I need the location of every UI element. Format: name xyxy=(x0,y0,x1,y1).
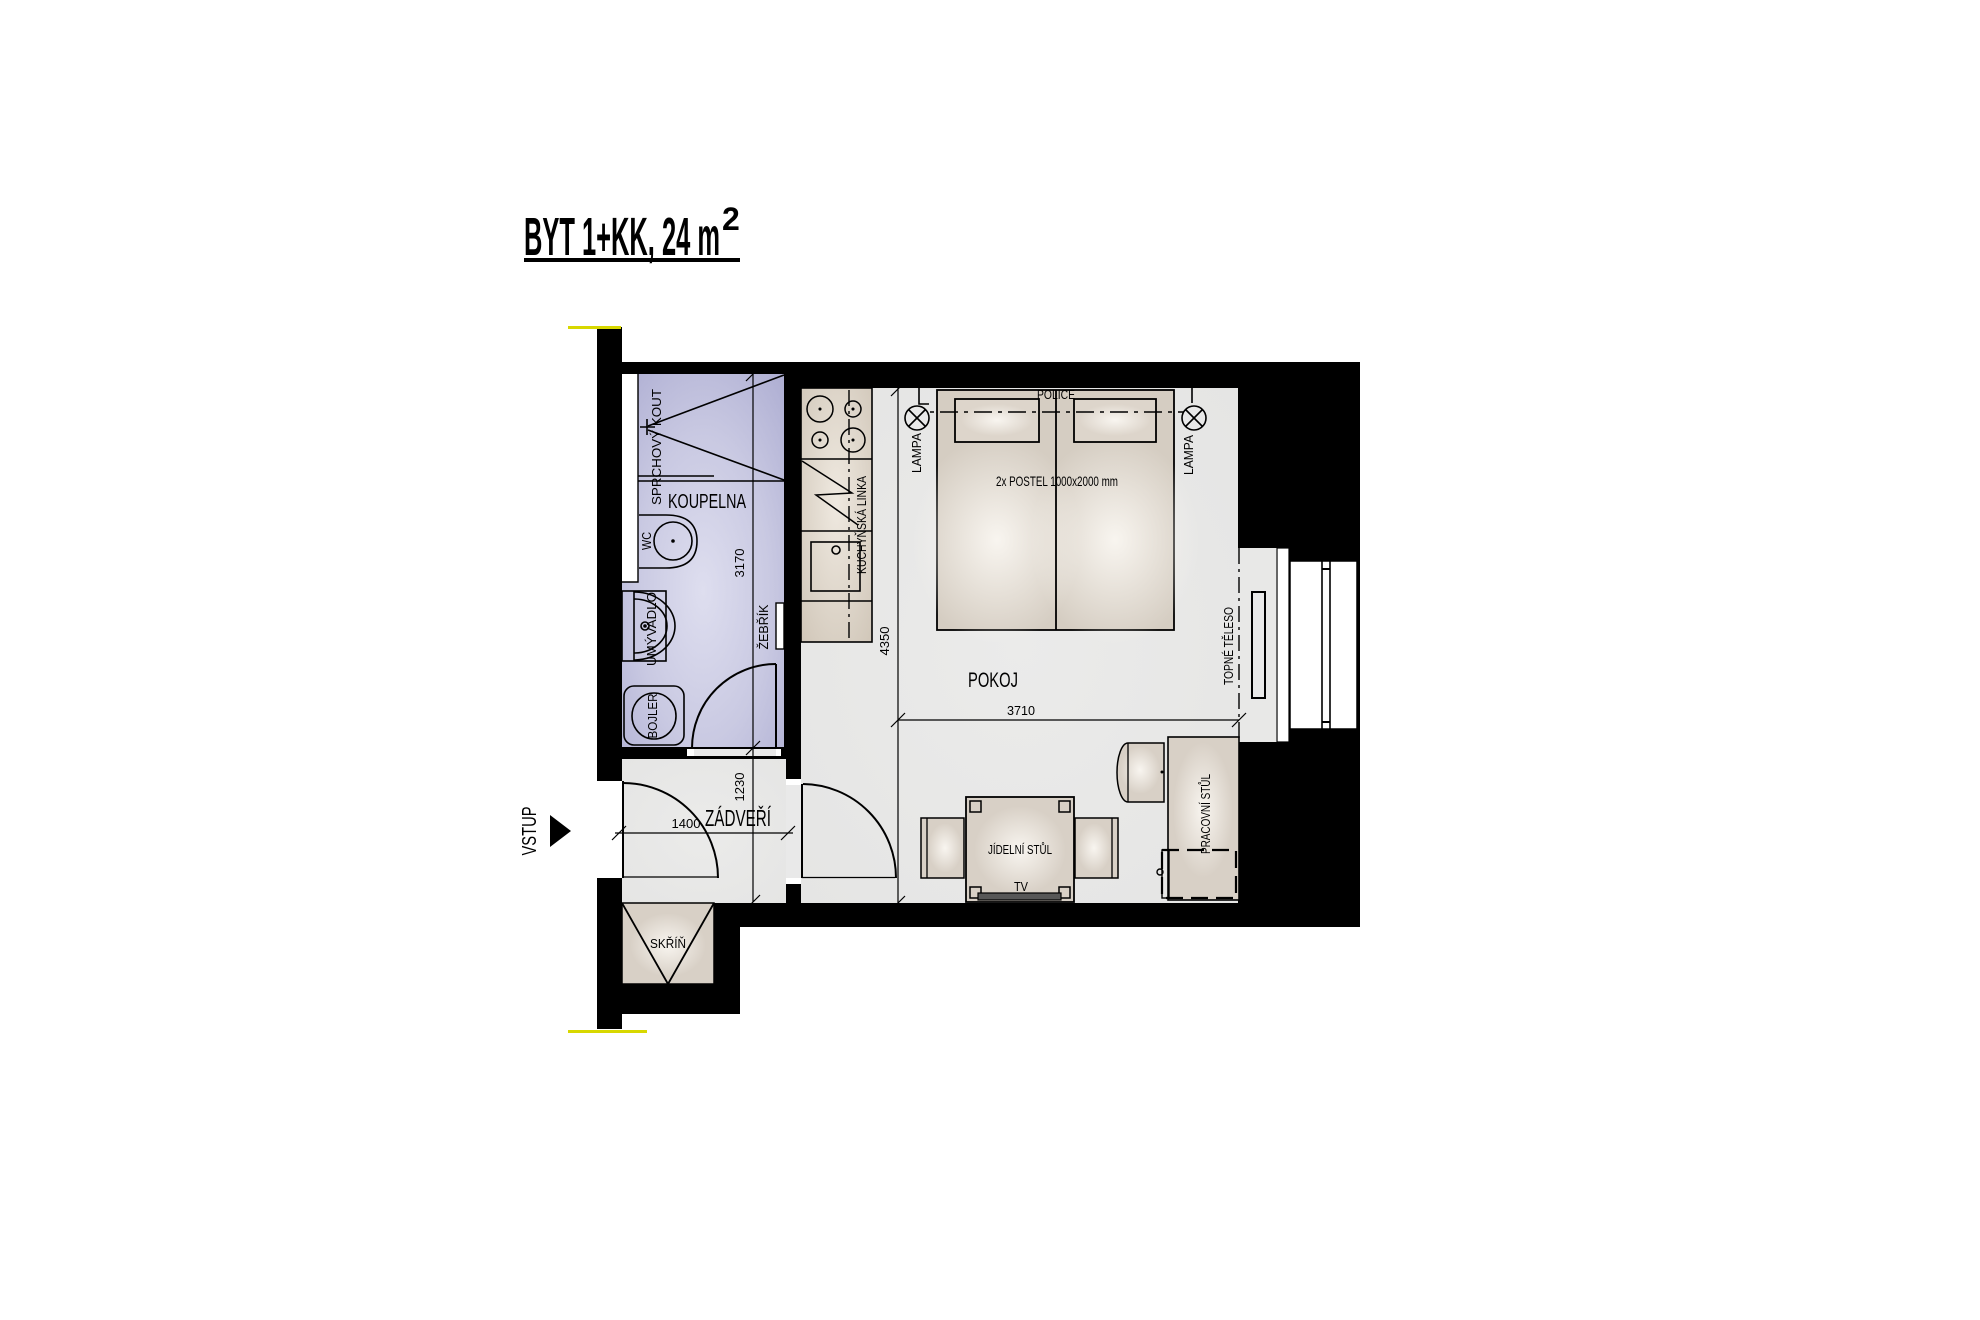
svg-text:UMÝVADLO: UMÝVADLO xyxy=(644,592,659,666)
svg-text:3170: 3170 xyxy=(732,549,747,578)
svg-text:PRACOVNÍ STŮL: PRACOVNÍ STŮL xyxy=(1198,774,1213,854)
svg-text:KUCHYŇSKÁ LINKA: KUCHYŇSKÁ LINKA xyxy=(854,476,869,574)
svg-text:TOPNÉ TĚLESO: TOPNÉ TĚLESO xyxy=(1221,607,1236,685)
svg-text:1230: 1230 xyxy=(732,773,747,802)
svg-text:WC: WC xyxy=(639,532,654,550)
svg-text:SPRCHOVÝ KOUT: SPRCHOVÝ KOUT xyxy=(649,389,664,505)
svg-text:BOJLER: BOJLER xyxy=(645,694,660,739)
svg-text:LAMPA: LAMPA xyxy=(1181,435,1196,475)
svg-text:POLICE: POLICE xyxy=(1037,387,1075,402)
svg-text:POKOJ: POKOJ xyxy=(968,669,1018,692)
svg-text:4350: 4350 xyxy=(877,627,892,656)
svg-text:1400: 1400 xyxy=(672,816,701,831)
svg-text:KOUPELNA: KOUPELNA xyxy=(668,491,746,513)
svg-text:LAMPA: LAMPA xyxy=(909,433,924,473)
svg-text:2: 2 xyxy=(722,201,740,237)
svg-text:JÍDELNÍ STŮL: JÍDELNÍ STŮL xyxy=(988,842,1052,857)
svg-text:TV: TV xyxy=(1014,879,1028,894)
svg-text:ŽEBŘÍK: ŽEBŘÍK xyxy=(756,604,771,649)
svg-text:2x POSTEL 1000x2000 mm: 2x POSTEL 1000x2000 mm xyxy=(996,473,1118,489)
svg-text:VSTUP: VSTUP xyxy=(519,807,541,856)
svg-text:ZÁDVEŘÍ: ZÁDVEŘÍ xyxy=(705,805,771,831)
svg-text:3710: 3710 xyxy=(1007,703,1035,718)
svg-text:SKŘÍŇ: SKŘÍŇ xyxy=(650,936,686,951)
